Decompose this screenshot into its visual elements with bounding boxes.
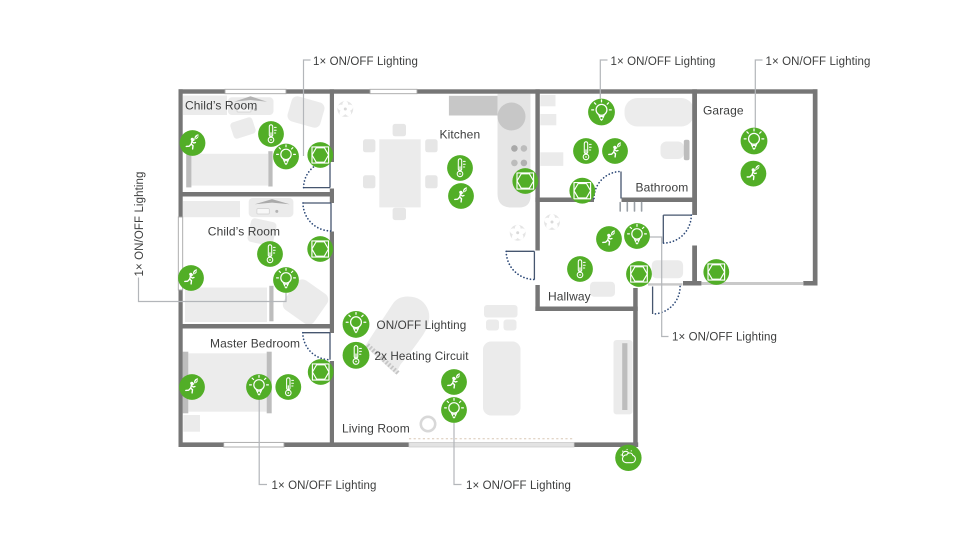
svg-text:Bathroom: Bathroom (636, 181, 689, 195)
svg-text:1× ON/OFF Lighting: 1× ON/OFF Lighting (672, 332, 777, 344)
svg-text:Hallway: Hallway (548, 290, 591, 304)
svg-text:ON/OFF Lighting: ON/OFF Lighting (377, 319, 467, 332)
svg-text:1× ON/OFF Lighting: 1× ON/OFF Lighting (134, 171, 146, 276)
svg-text:2x Heating Circuit: 2x Heating Circuit (375, 350, 470, 363)
svg-text:Child’s Room: Child’s Room (185, 99, 257, 113)
svg-text:Child’s Room: Child’s Room (208, 225, 280, 239)
svg-text:1× ON/OFF Lighting: 1× ON/OFF Lighting (766, 56, 871, 68)
svg-text:1× ON/OFF Lighting: 1× ON/OFF Lighting (611, 56, 716, 68)
svg-text:Living Room: Living Room (342, 422, 410, 436)
svg-text:Garage: Garage (703, 104, 744, 118)
svg-text:1× ON/OFF Lighting: 1× ON/OFF Lighting (272, 480, 377, 492)
svg-text:1× ON/OFF Lighting: 1× ON/OFF Lighting (313, 56, 418, 68)
svg-text:Master Bedroom: Master Bedroom (210, 337, 300, 351)
svg-text:1× ON/OFF Lighting: 1× ON/OFF Lighting (466, 480, 571, 492)
svg-text:Kitchen: Kitchen (440, 128, 481, 142)
